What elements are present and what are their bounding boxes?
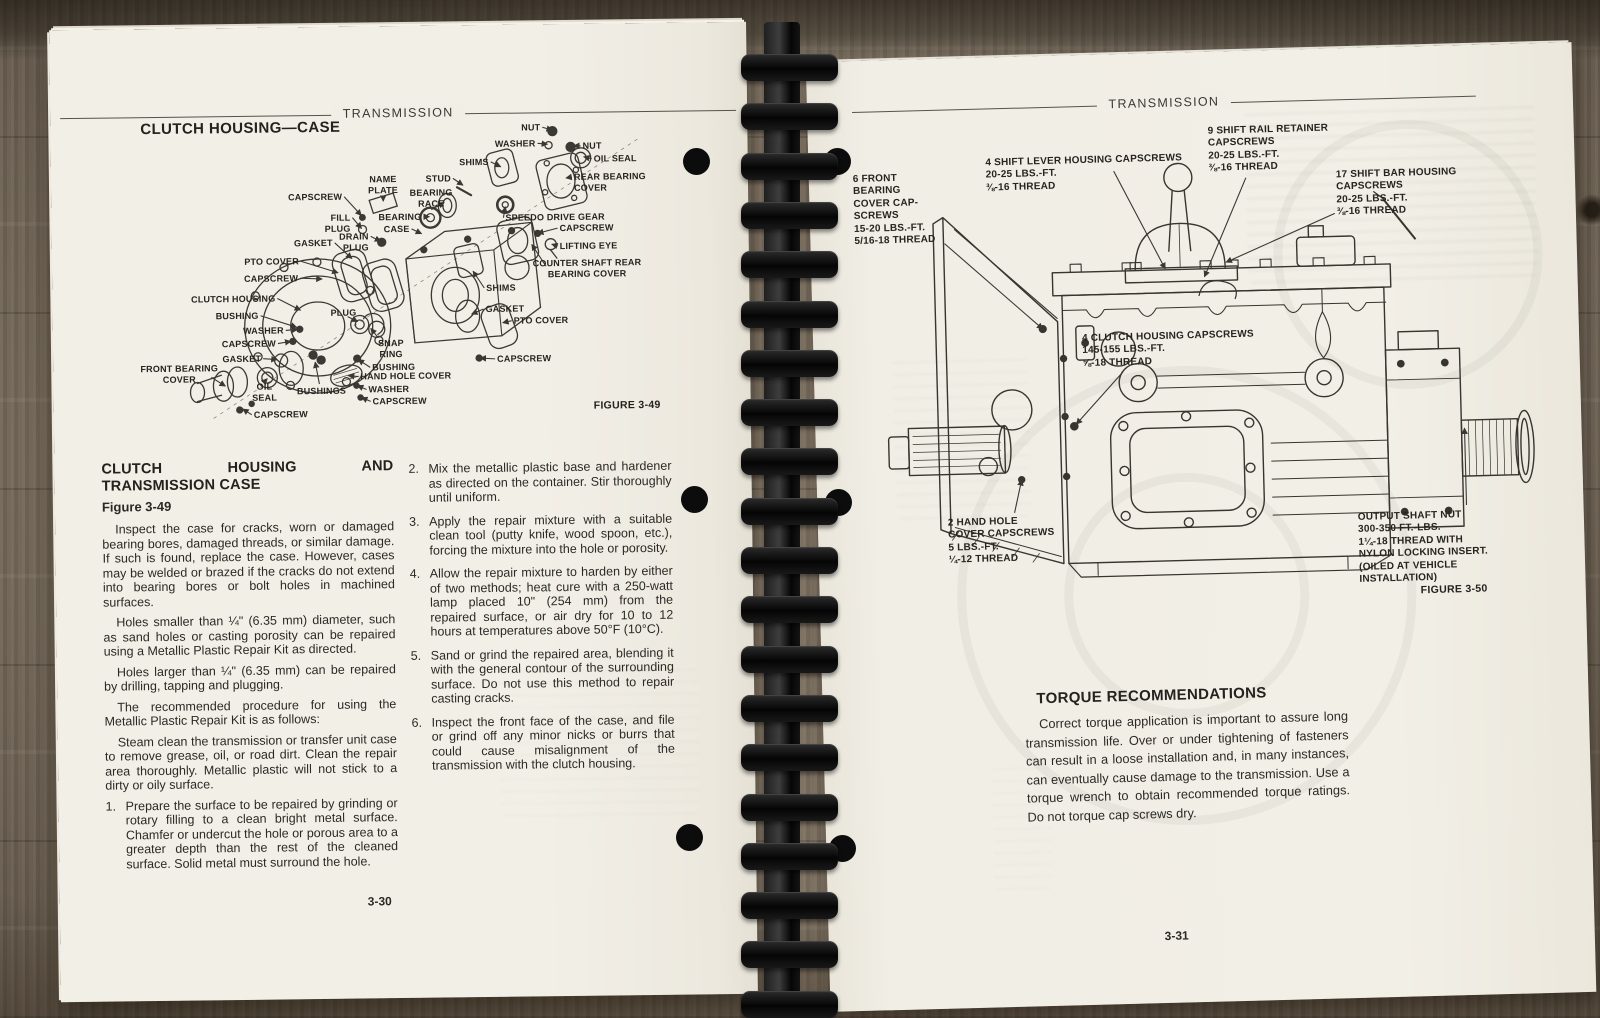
torque-heading: TORQUE RECOMMENDATIONS (1036, 684, 1267, 707)
show-through-ghost (499, 664, 701, 816)
binding-tooth (741, 646, 838, 673)
diagram-label: CAPSCREW (222, 339, 276, 350)
diagram-label: BUSHING (372, 362, 415, 373)
page-number-left: 3-30 (340, 894, 420, 909)
figure-reference: Figure 3-49 (102, 496, 394, 515)
running-head-text: TRANSMISSION (331, 105, 466, 121)
diagram-label: BEARING (378, 212, 421, 223)
callout-label: OUTPUT SHAFT NUT 300-350 FT.-LBS. 1¼-18 … (1358, 509, 1489, 587)
binding-tooth (741, 498, 838, 525)
binding-tooth (741, 744, 838, 771)
binding-tooth (741, 251, 838, 278)
binding-tooth (741, 695, 838, 722)
figure-caption-349: FIGURE 3-49 (594, 399, 661, 412)
diagram-label: BEARING RACE (410, 187, 453, 209)
binding-tooth (741, 103, 838, 130)
binding-tooth (741, 350, 838, 377)
diagram-label: LIFTING EYE (560, 240, 618, 251)
diagram-label: DRAIN PLUG (339, 231, 369, 253)
binding-tooth (741, 843, 838, 870)
diagram-label: CASE (384, 224, 410, 235)
diagram-label: COUNTER SHAFT REAR BEARING COVER (533, 257, 642, 280)
diagram-label: CAPSCREW (497, 353, 551, 364)
callout-label: 6 FRONT BEARING COVER CAP- SCREWS 15-20 … (853, 172, 936, 248)
diagram-label: NAME PLATE (368, 174, 398, 196)
right-page: TRANSMISSION (806, 42, 1597, 1012)
diagram-label: GASKET (294, 238, 333, 249)
punch-hole (681, 486, 708, 513)
list-item-number: 4. (410, 567, 426, 640)
diagram-label: SHIMS (459, 157, 489, 168)
photo-of-open-manual: { "style": {"paper":"#f0ede5","ink":"#2b… (0, 0, 1600, 1018)
paragraph: Holes larger than ¼" (6.35 mm) can be re… (104, 662, 396, 695)
punch-hole (676, 824, 703, 851)
binding-tooth (741, 794, 838, 821)
show-through-ghost (991, 759, 1054, 891)
column-heading: CLUTCH HOUSING AND TRANSMISSION CASE (101, 458, 393, 495)
column-heading-line2: TRANSMISSION CASE (102, 475, 394, 495)
diagram-label: GASKET (222, 354, 261, 365)
callout-label: 4 CLUTCH HOUSING CAPSCREWS 145-155 LBS.-… (1082, 329, 1255, 371)
diagram-label: PTO COVER (514, 315, 569, 326)
diagram-label: CAPSCREW (559, 222, 613, 233)
binding-tooth (741, 547, 838, 574)
callout-label: 4 SHIFT LEVER HOUSING CAPSCREWS 20-25 LB… (985, 152, 1183, 194)
list-item-number: 5. (411, 648, 427, 706)
list-item: 1.Prepare the surface to be repaired by … (105, 796, 398, 872)
page-number-right: 3-31 (1137, 928, 1217, 944)
diagram-label: HAND HOLE COVER (360, 370, 451, 382)
diagram-label: REAR BEARING COVER (574, 171, 646, 193)
binding-tooth (741, 202, 838, 229)
diagram-label: NUT (582, 141, 601, 152)
left-column: CLUTCH HOUSING AND TRANSMISSION CASE Fig… (101, 458, 398, 881)
binding-tooth (741, 153, 838, 180)
diagram-label: GASKET (485, 304, 524, 315)
show-through-ghost (1244, 101, 1538, 284)
diagram-label: CAPSCREW (288, 192, 342, 203)
punch-hole (683, 148, 710, 175)
paragraph: The recommended procedure for using the … (104, 697, 396, 730)
show-through-ghost (892, 351, 1031, 519)
diagram-label: WASHER (243, 325, 284, 336)
binding-tooth (741, 54, 838, 81)
diagram-label: SHIMS (486, 283, 516, 294)
diagram-label: CAPSCREW (373, 396, 427, 407)
diagram-label: FRONT BEARING COVER (140, 363, 218, 385)
list-item-text: Mix the metallic plastic base and harden… (428, 459, 672, 505)
list-item-number: 1. (105, 799, 121, 872)
list-item-text: Prepare the surface to be repaired by gr… (125, 796, 398, 872)
diagram-label: BUSHINGS (297, 386, 346, 397)
diagram-label: SPEEDO DRIVE GEAR (505, 212, 605, 224)
diagram-label: CAPSCREW (244, 273, 298, 284)
binding-tooth (741, 941, 838, 968)
list-item-number: 2. (408, 462, 424, 506)
callout-label: 2 HAND HOLE COVER CAPSCREWS 5 LBS.-FT. ¼… (948, 515, 1056, 567)
binding-tooth (741, 301, 838, 328)
diagram-label: NUT (521, 122, 540, 133)
binding-tooth (741, 892, 838, 919)
list-item-text: Apply the repair mixture with a suitable… (429, 511, 673, 557)
list-item: 2.Mix the metallic plastic base and hard… (408, 459, 672, 506)
list-item-text: Allow the repair mixture to harden by ei… (430, 564, 674, 639)
diagram-label: WASHER (368, 384, 409, 395)
list-item: 4.Allow the repair mixture to harden by … (410, 564, 674, 640)
list-item: 3.Apply the repair mixture with a suitab… (409, 511, 673, 558)
diagram-label: CLUTCH HOUSING (191, 294, 275, 306)
diagram-label: PTO COVER (244, 256, 299, 267)
running-head-text: TRANSMISSION (1096, 94, 1231, 112)
numbered-list-col1: 1.Prepare the surface to be repaired by … (105, 796, 398, 872)
diagram-label: SNAP RING (378, 338, 404, 360)
wooden-desk-background: TRANSMISSION CLUTCH HOUSING—CASE (0, 0, 1600, 1018)
paragraph: Steam clean the transmission or transfer… (105, 732, 398, 794)
paragraph: Inspect the case for cracks, worn or dam… (102, 519, 395, 610)
diagram-label: FILL PLUG (325, 213, 351, 235)
body-paragraphs: Inspect the case for cracks, worn or dam… (102, 519, 397, 793)
paragraph: Holes smaller than ¼" (6.35 mm) diameter… (103, 612, 396, 659)
diagram-label: STUD (426, 173, 451, 184)
list-item-number: 6. (411, 715, 427, 773)
binding-tooth (741, 991, 838, 1018)
binding-tooth (741, 596, 838, 623)
left-page: TRANSMISSION CLUTCH HOUSING—CASE (49, 22, 758, 1002)
diagram-label: OIL SEAL (594, 153, 637, 164)
section-title: CLUTCH HOUSING—CASE (140, 119, 340, 138)
diagram-label: BUSHING (216, 311, 259, 322)
binding-tooth (741, 448, 838, 475)
figure-caption-350: FIGURE 3-50 (1421, 583, 1488, 597)
torque-paragraph: Correct torque application is important … (1025, 707, 1351, 827)
diagram-label: WASHER (495, 138, 536, 149)
list-item-number: 3. (409, 514, 425, 558)
diagram-label: CAPSCREW (254, 409, 308, 420)
diagram-label: PLUG (331, 308, 357, 319)
binding-tooth (741, 399, 838, 426)
diagram-label: OIL SEAL (252, 382, 277, 404)
